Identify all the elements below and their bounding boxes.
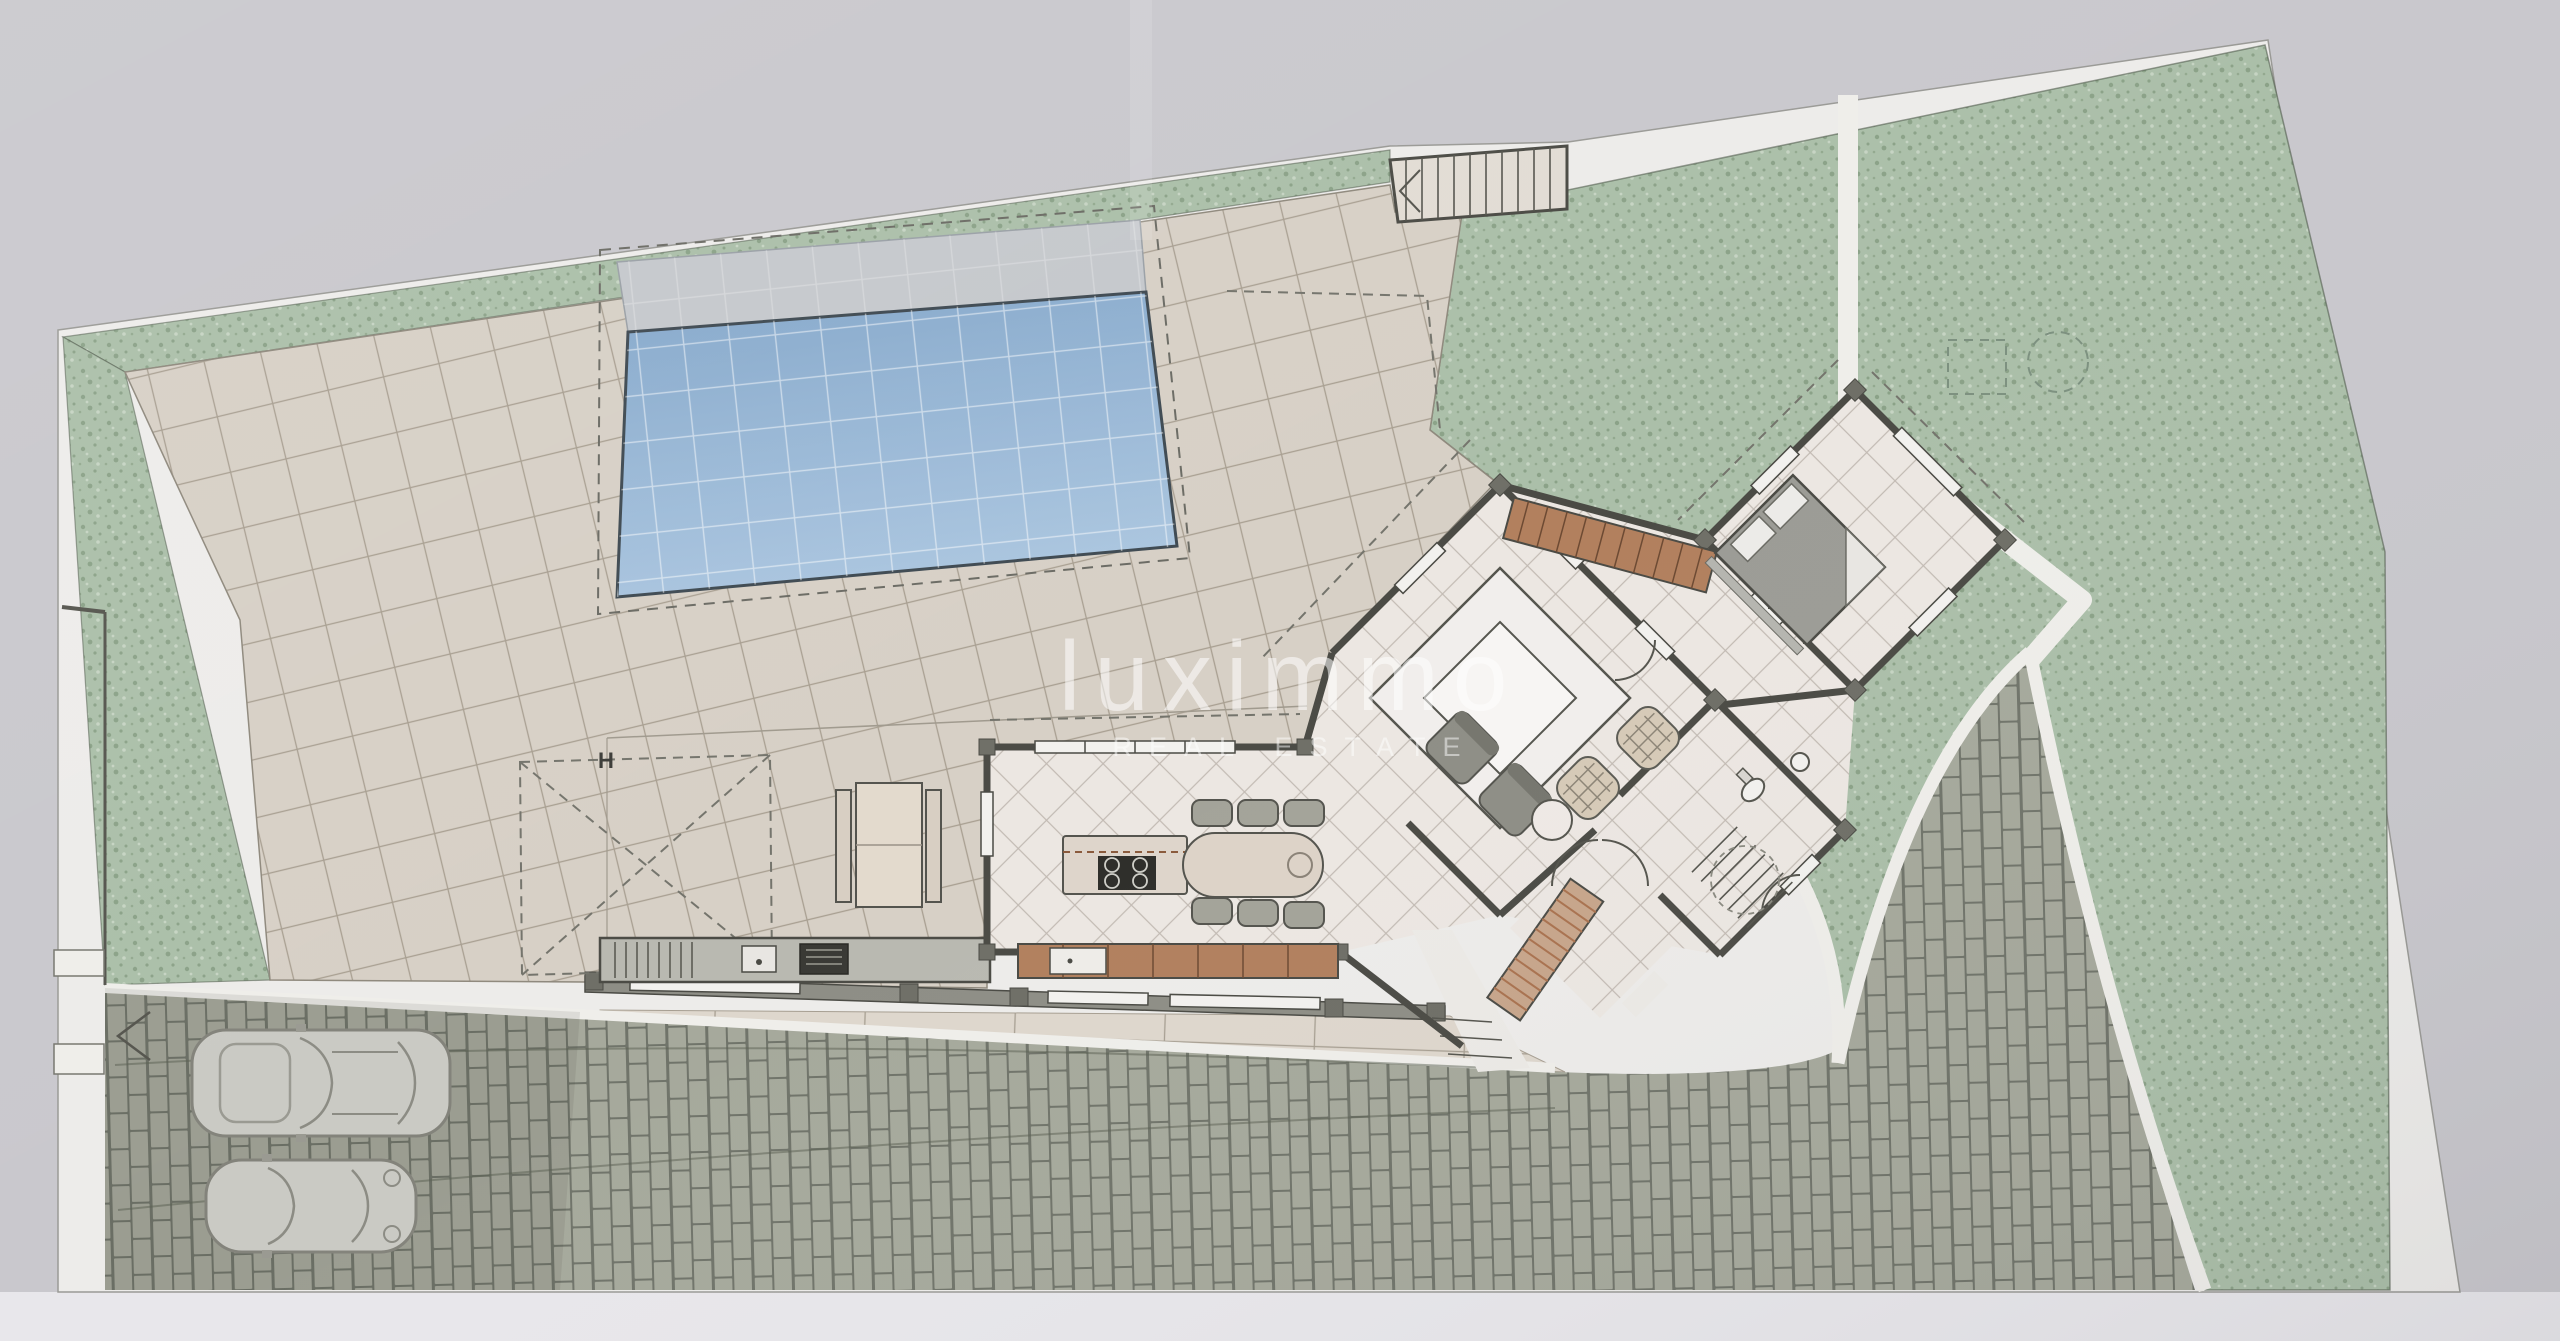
site-plan-drawing: H <box>0 0 2560 1341</box>
scanned-plan-photo: H <box>0 0 2560 1341</box>
photo-light-overlay <box>0 0 2560 1341</box>
